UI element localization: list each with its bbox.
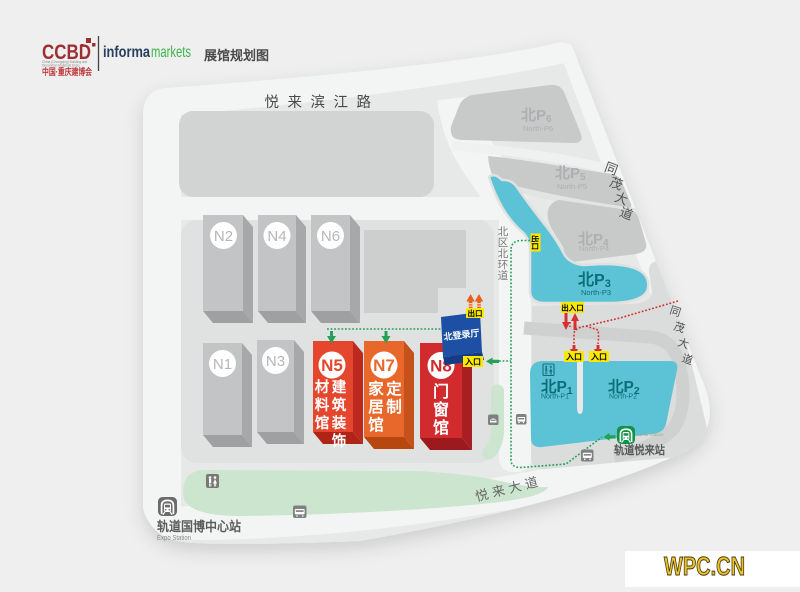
svg-text:悦来滨江路: 悦来滨江路 [265, 94, 380, 111]
svg-text:定: 定 [386, 379, 402, 398]
svg-text:门: 门 [433, 382, 449, 401]
svg-text:材: 材 [315, 378, 330, 396]
svg-text:North-P6: North-P6 [523, 124, 553, 133]
svg-text:入口: 入口 [590, 353, 607, 362]
svg-text:馆: 馆 [433, 418, 449, 437]
svg-text:出口: 出口 [468, 308, 483, 318]
svg-text:Yuelai Station: Yuelai Station [636, 432, 664, 437]
svg-text:装: 装 [331, 414, 347, 432]
svg-text:馆: 馆 [315, 414, 330, 432]
svg-text:N4: N4 [267, 228, 286, 245]
svg-text:North-P3: North-P3 [581, 288, 611, 297]
svg-text:North-P5: North-P5 [557, 182, 587, 191]
svg-text:markets: markets [151, 44, 191, 61]
svg-text:出入口: 出入口 [561, 303, 584, 313]
svg-text:N6: N6 [321, 228, 340, 245]
svg-text:展馆规划图: 展馆规划图 [204, 48, 269, 63]
svg-text:Expo Station: Expo Station [157, 535, 191, 542]
svg-text:出口: 出口 [531, 235, 541, 250]
svg-text:筑: 筑 [331, 396, 347, 414]
svg-text:入口: 入口 [464, 358, 481, 367]
svg-text:制: 制 [386, 398, 402, 416]
svg-text:WPC.CN: WPC.CN [664, 551, 745, 581]
svg-text:道: 道 [498, 269, 509, 282]
svg-text:饰: 饰 [332, 432, 347, 450]
svg-text:轨道悦来站: 轨道悦来站 [614, 443, 665, 457]
svg-text:North-P1: North-P1 [541, 394, 569, 401]
svg-text:N5: N5 [321, 356, 343, 375]
svg-text:N3: N3 [266, 353, 285, 370]
svg-text:informa: informa [103, 44, 150, 61]
svg-text:居: 居 [368, 398, 384, 416]
svg-text:中国·重庆建博会: 中国·重庆建博会 [42, 66, 93, 77]
svg-text:窗: 窗 [433, 400, 449, 419]
svg-text:N2: N2 [214, 228, 233, 245]
svg-text:建: 建 [332, 378, 347, 396]
svg-text:馆: 馆 [368, 415, 384, 434]
svg-text:North-P4: North-P4 [579, 244, 609, 253]
svg-text:料: 料 [315, 396, 330, 414]
svg-text:家: 家 [368, 379, 384, 398]
svg-text:N7: N7 [373, 356, 395, 375]
svg-text:North-P2: North-P2 [609, 394, 637, 401]
svg-text:轨道国博中心站: 轨道国博中心站 [157, 519, 241, 534]
svg-text:入口: 入口 [565, 353, 582, 362]
svg-text:N1: N1 [213, 356, 232, 373]
